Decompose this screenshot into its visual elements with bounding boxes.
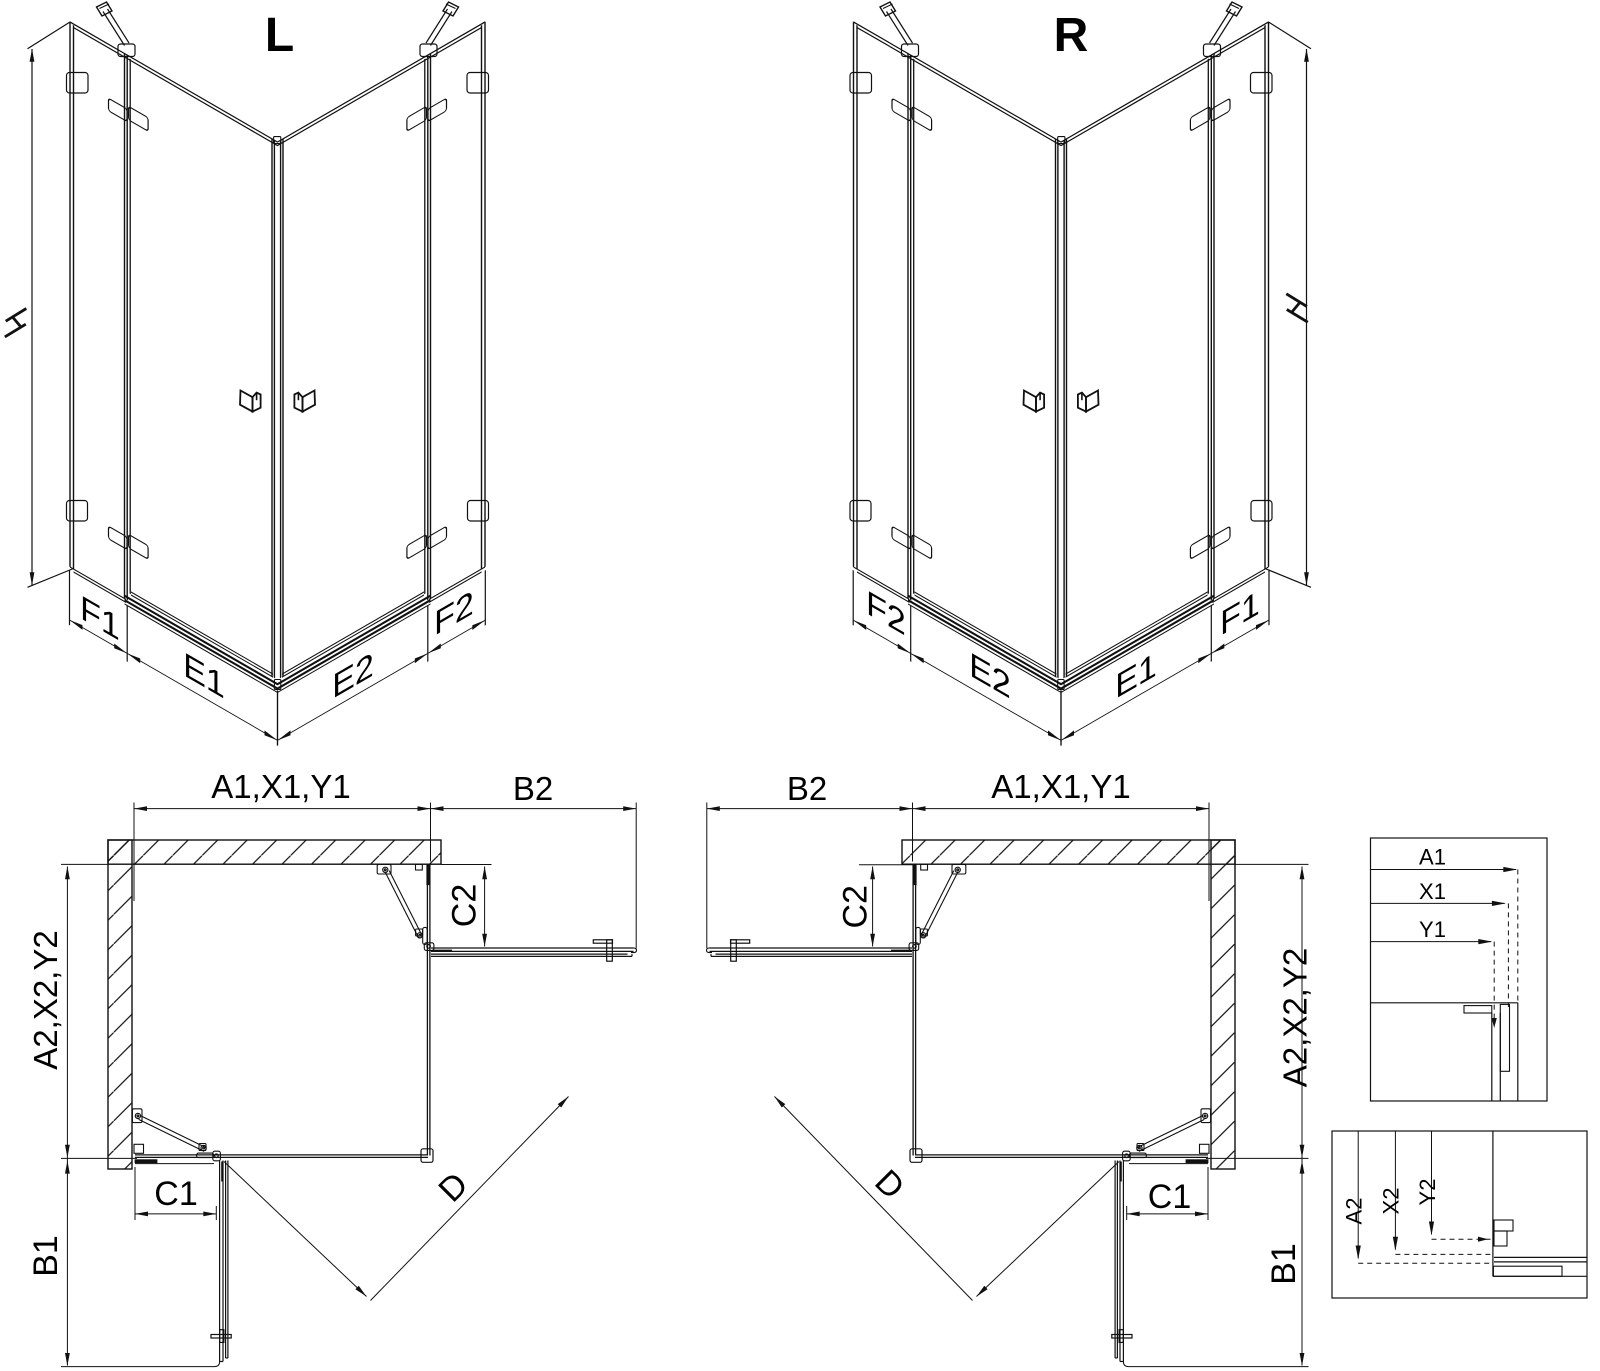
svg-text:L: L <box>265 9 294 62</box>
svg-text:B1: B1 <box>27 1235 65 1277</box>
svg-text:C1: C1 <box>1148 1178 1191 1216</box>
svg-text:X2: X2 <box>1379 1188 1404 1215</box>
svg-text:A1: A1 <box>1419 845 1446 870</box>
svg-text:A2,X2,Y2: A2,X2,Y2 <box>1277 948 1314 1087</box>
svg-text:C2: C2 <box>836 885 874 928</box>
svg-text:B2: B2 <box>787 770 827 807</box>
svg-text:A1,X1,Y1: A1,X1,Y1 <box>991 768 1130 805</box>
svg-text:Y1: Y1 <box>1419 917 1446 942</box>
svg-text:B2: B2 <box>513 770 553 807</box>
svg-text:Y2: Y2 <box>1415 1179 1440 1206</box>
svg-text:A1,X1,Y1: A1,X1,Y1 <box>211 768 350 805</box>
svg-text:A2: A2 <box>1342 1198 1367 1225</box>
svg-text:C1: C1 <box>154 1175 197 1213</box>
svg-text:B1: B1 <box>1265 1243 1303 1285</box>
svg-text:A2,X2,Y2: A2,X2,Y2 <box>27 930 64 1069</box>
svg-text:C2: C2 <box>446 884 484 927</box>
svg-text:R: R <box>1054 9 1089 62</box>
svg-text:X1: X1 <box>1419 879 1446 904</box>
